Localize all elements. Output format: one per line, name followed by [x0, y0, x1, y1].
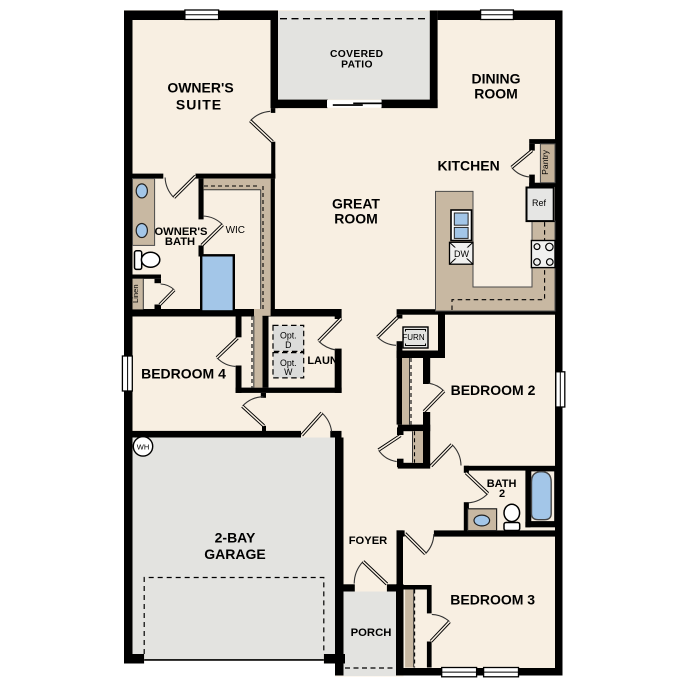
svg-text:BEDROOM 3: BEDROOM 3 — [450, 592, 535, 608]
svg-text:DW: DW — [454, 249, 469, 259]
svg-text:KITCHEN: KITCHEN — [437, 158, 499, 174]
svg-text:WH: WH — [137, 442, 150, 451]
svg-text:W: W — [284, 367, 293, 377]
svg-text:Ref: Ref — [532, 198, 547, 208]
svg-text:GREAT: GREAT — [332, 195, 380, 211]
svg-text:SUITE: SUITE — [176, 96, 222, 112]
svg-text:PORCH: PORCH — [351, 627, 392, 639]
svg-text:D: D — [285, 340, 291, 350]
svg-text:Pantry: Pantry — [540, 149, 550, 175]
svg-text:DINING: DINING — [472, 71, 521, 87]
svg-text:BEDROOM 2: BEDROOM 2 — [451, 382, 536, 398]
svg-text:GARAGE: GARAGE — [204, 546, 265, 562]
svg-text:LAUN: LAUN — [307, 355, 338, 367]
svg-text:ROOM: ROOM — [474, 86, 518, 102]
svg-text:BEDROOM 4: BEDROOM 4 — [141, 366, 226, 382]
svg-text:FURN: FURN — [402, 333, 424, 342]
svg-text:OWNER'S: OWNER'S — [167, 80, 233, 96]
svg-text:FOYER: FOYER — [349, 535, 388, 547]
svg-text:2: 2 — [499, 488, 505, 500]
svg-text:BATH: BATH — [165, 236, 195, 248]
svg-text:ROOM: ROOM — [334, 211, 378, 227]
svg-text:WIC: WIC — [226, 225, 245, 236]
svg-text:Linen: Linen — [131, 284, 140, 303]
svg-text:2-BAY: 2-BAY — [215, 530, 256, 546]
svg-text:PATIO: PATIO — [341, 60, 373, 71]
